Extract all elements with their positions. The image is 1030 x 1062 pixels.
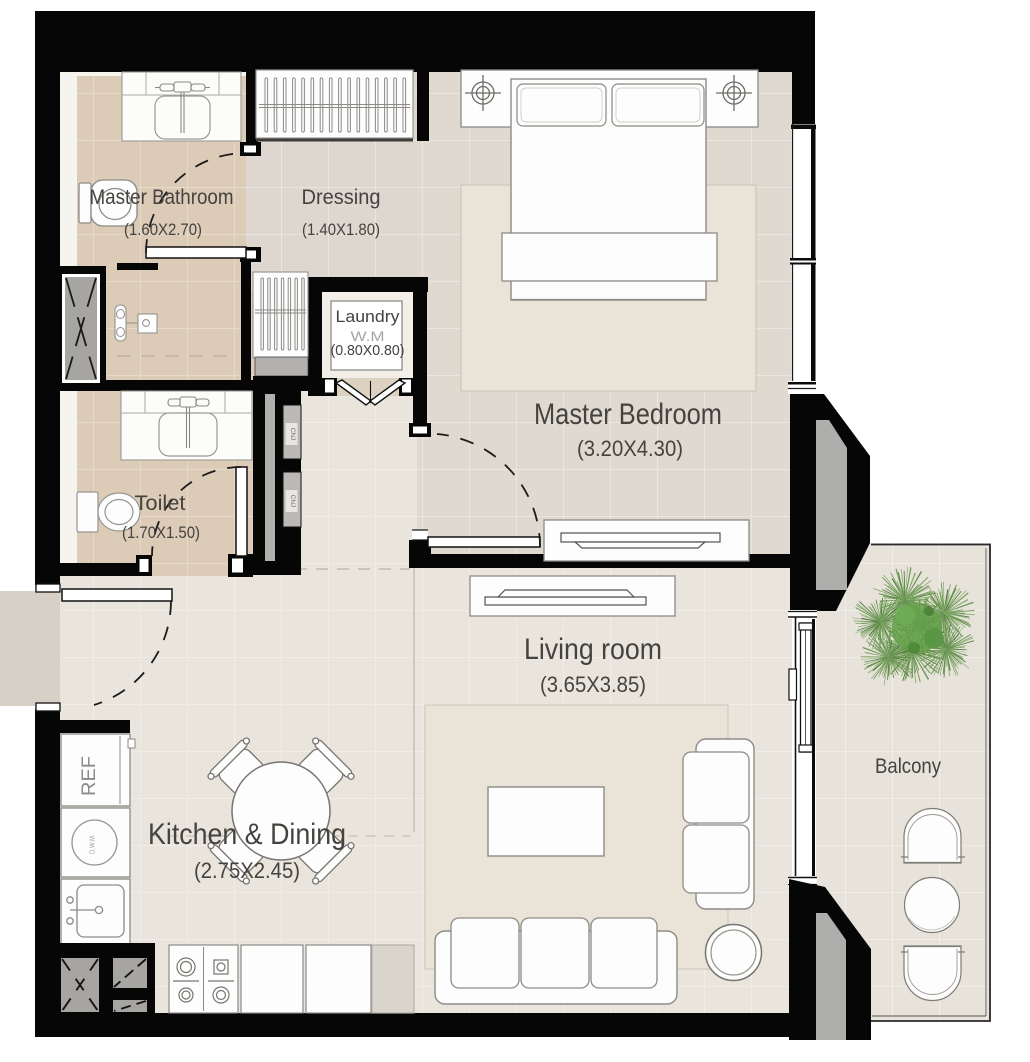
svg-text:Balcony: Balcony bbox=[875, 754, 941, 778]
svg-text:(2.75X2.45): (2.75X2.45) bbox=[194, 858, 300, 883]
svg-text:Dressing: Dressing bbox=[302, 185, 381, 209]
svg-text:CNJ: CNJ bbox=[289, 428, 296, 441]
svg-text:Laundry: Laundry bbox=[336, 307, 401, 326]
svg-text:Kitchen & Dining: Kitchen & Dining bbox=[148, 818, 346, 851]
svg-text:Living room: Living room bbox=[524, 633, 662, 666]
svg-text:REF: REF bbox=[79, 756, 100, 796]
svg-text:(1.40X1.80): (1.40X1.80) bbox=[302, 220, 380, 239]
svg-text:(1.70X1.50): (1.70X1.50) bbox=[122, 523, 200, 542]
svg-text:(0.80X0.80): (0.80X0.80) bbox=[331, 342, 405, 359]
svg-text:(1.60X2.70): (1.60X2.70) bbox=[124, 220, 202, 239]
svg-text:Master Bathroom: Master Bathroom bbox=[90, 185, 234, 209]
svg-text:(3.65X3.85): (3.65X3.85) bbox=[540, 672, 646, 697]
svg-text:Master Bedroom: Master Bedroom bbox=[534, 398, 722, 431]
svg-text:CNJ: CNJ bbox=[289, 495, 296, 508]
svg-text:(3.20X4.30): (3.20X4.30) bbox=[577, 436, 683, 461]
svg-text:D.W.M: D.W.M bbox=[90, 836, 97, 854]
svg-text:Toilet: Toilet bbox=[135, 491, 186, 515]
